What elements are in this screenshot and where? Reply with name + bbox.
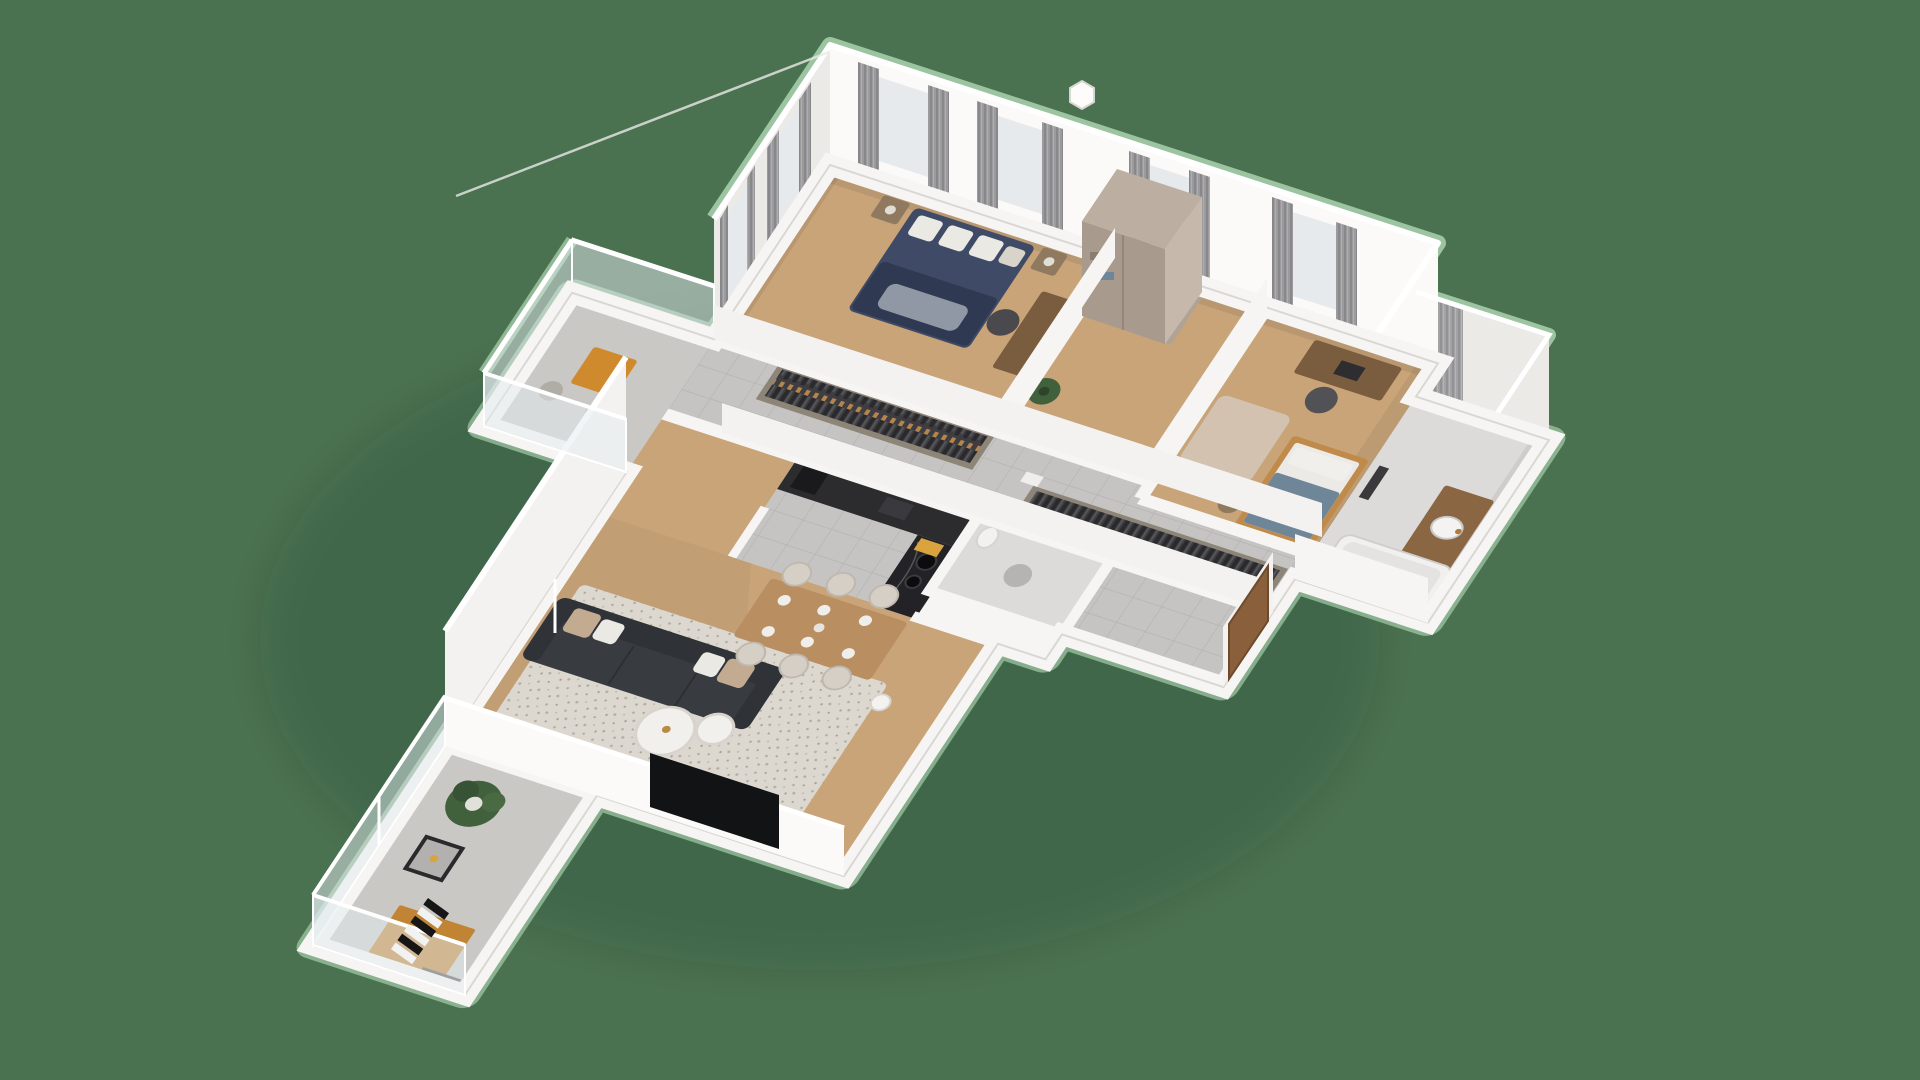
floorplan-canvas [0,0,1920,1080]
hexagon-shelf [1070,81,1094,109]
floorplan-render [0,0,1920,1080]
